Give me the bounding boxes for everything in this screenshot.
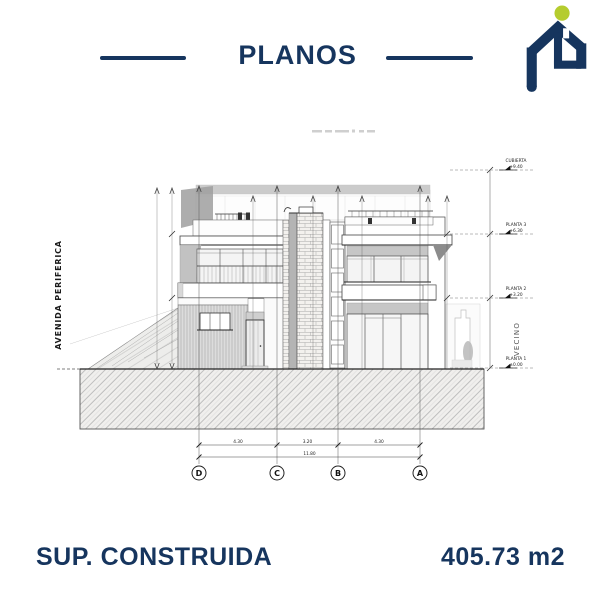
level-marker-cubierta: CUBIERTA +9.40 bbox=[499, 158, 527, 170]
dim-d-c: 4.30 bbox=[233, 439, 243, 445]
green-dot-icon bbox=[554, 6, 569, 21]
drawing-title-faint bbox=[312, 130, 375, 133]
house-p-logo-icon bbox=[527, 27, 582, 92]
grid-bubble-a: A bbox=[413, 466, 427, 480]
level-name: PLANTA 3 bbox=[506, 222, 527, 228]
grid-axis-letter: A bbox=[417, 469, 424, 478]
dim-total: 11.80 bbox=[303, 451, 316, 457]
right-wing bbox=[342, 211, 452, 369]
level-name: CUBIERTA bbox=[506, 158, 527, 164]
grid-axis-letter: B bbox=[335, 469, 341, 478]
terrain-slope bbox=[70, 308, 178, 369]
grid-bubble-d: D bbox=[192, 466, 206, 480]
neighbor-sketch bbox=[446, 304, 480, 369]
dim-c-b: 3.20 bbox=[303, 439, 313, 445]
grid-axis-letter: D bbox=[196, 469, 203, 478]
logo-tail bbox=[527, 82, 537, 92]
level-elevation: +3.20 bbox=[509, 292, 522, 298]
company-logo bbox=[521, 2, 593, 98]
level-marker-planta2: PLANTA 2 +3.20 bbox=[499, 286, 527, 298]
grid-bubble-b: B bbox=[331, 466, 345, 480]
level-elevation: +9.40 bbox=[509, 164, 522, 170]
page-title: PLANOS bbox=[238, 40, 357, 71]
built-area-label: SUP. CONSTRUIDA bbox=[36, 543, 272, 572]
header-divider-right bbox=[386, 56, 473, 60]
bottom-dimensions: 4.30 3.20 4.30 11.80 bbox=[197, 439, 423, 460]
header-divider-left bbox=[100, 56, 186, 60]
level-marker-planta3: PLANTA 3 +6.30 bbox=[499, 222, 527, 234]
level-name: PLANTA 2 bbox=[506, 286, 527, 292]
level-marker-planta1: PLANTA 1 ±0.00 bbox=[499, 356, 527, 368]
built-area-value: 405.73 m2 bbox=[441, 543, 565, 572]
grid-bubbles: D C B A bbox=[192, 466, 427, 480]
level-elevation: ±0.00 bbox=[509, 362, 522, 368]
grid-bubble-c: C bbox=[270, 466, 284, 480]
dim-b-a: 4.30 bbox=[374, 439, 384, 445]
street-label: AVENIDA PERIFERICA bbox=[54, 240, 63, 350]
neighbor-label: VECINO bbox=[513, 322, 521, 356]
plans-flyer-page: PLANOS bbox=[0, 0, 600, 600]
grid-axis-letter: C bbox=[274, 469, 280, 478]
level-elevation: +6.30 bbox=[509, 228, 522, 234]
elevation-drawing: CUBIERTA +9.40 PLANTA 3 +6.30 PLANTA 2 +… bbox=[0, 108, 600, 500]
stair-tower bbox=[283, 207, 345, 370]
